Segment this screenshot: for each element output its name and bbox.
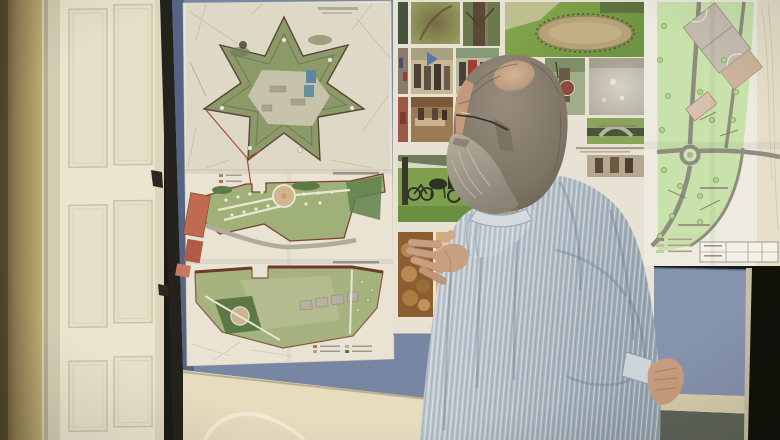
photo-scene [0,0,780,440]
vignette-overlay [0,0,780,440]
